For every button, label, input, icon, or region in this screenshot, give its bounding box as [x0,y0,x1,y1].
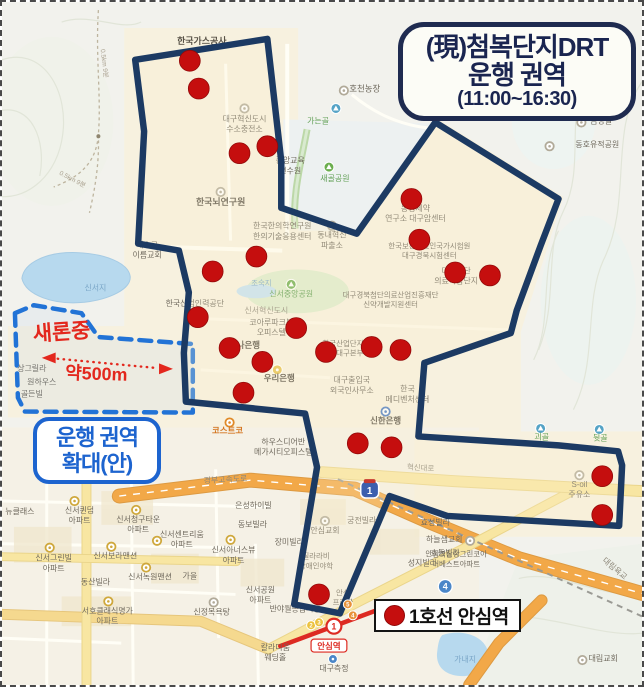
map-label: 괴골 [534,432,549,441]
map-label: 신서보라맨션 [93,551,137,561]
gray-icon-glyph [343,89,346,92]
map-label: 대림교회 [589,653,618,663]
expressway-shield-number: 1 [367,486,373,497]
map-label: 동보빌라 [238,519,268,529]
map-label: 뒷골 [593,433,608,442]
drt-stop-dot [188,78,209,99]
expansion-line-1: 운행 권역 [56,425,138,450]
map-label: 하늘샘교회 [426,534,463,544]
map-label: 신서녹원맨션 [128,572,172,582]
apt-icon-glyph [73,500,76,503]
expansion-line-2: 확대(안) [62,451,132,476]
title-line-2: 운행 권역 [468,61,566,89]
map-label: 장미빌라 [275,537,305,547]
apt-icon-glyph [229,538,232,541]
map-label: 대구측정 [319,663,348,673]
place-icon-glyph [332,658,335,661]
subway-line-1-number: 1 [331,622,336,632]
legend-label: 1호선 안심역 [409,602,509,629]
apt-icon-glyph [145,566,148,569]
drt-stop-dot [361,337,382,358]
gray-icon-glyph [469,539,472,542]
map-label: 신정목욕탕 [193,606,230,616]
apt-icon-glyph [135,509,138,512]
map-label: 안심역삼정그린코아더베스트아파트 [425,549,487,569]
drt-stop-dot [202,261,223,282]
drt-stop-dot [401,188,422,209]
map-label: 은성하이빌 [235,500,272,510]
drt-stop-dot [286,318,307,339]
apt-icon-glyph [107,600,110,603]
gray-icon-glyph [212,601,215,604]
drt-stop-dot [233,382,254,403]
expansion-proposal-box: 운행 권역 확대(안) [33,417,161,484]
gray-icon-glyph [581,659,584,662]
map-label: 동호유적공원 [575,139,619,149]
drt-stop-dot [592,504,613,525]
drt-stop-dot [480,265,501,286]
drt-stop-dot [252,351,273,372]
drt-stop-dot [316,342,337,363]
drt-stop-dot [592,466,613,487]
legend-stop-dot-icon [384,605,405,626]
apt-icon-glyph [156,539,159,542]
costco-icon-glyph [228,421,231,424]
current-service-area-title-box: (現)첨복단지DRT 운행 권역 (11:00~16:30) [398,22,636,121]
drt-stop-dot [381,437,402,458]
saeron-middle-school-label: 새론중 [32,319,91,346]
legend-box: 1호선 안심역 [374,599,521,632]
drt-stop-dot [187,307,208,328]
drt-stop-dot [219,338,240,359]
expressway-shield-top [364,479,376,483]
drt-stop-dot [246,246,267,267]
ansim-station-label: 안심역 [317,641,340,651]
map-label: 호천농장 [349,84,380,94]
gray-icon-glyph [548,145,551,148]
distance-label: 약500m [65,362,128,385]
title-line-1: (現)첨복단지DRT [426,33,608,61]
drt-stop-dot [229,143,250,164]
drt-stop-dot [347,433,368,454]
drt-stop-dot [257,136,278,157]
map-label: 새골공원 [320,174,349,183]
drt-stop-dot [445,262,466,283]
map-label: 동산빌라 [81,576,111,586]
map-label: 가는골 [307,116,329,125]
apt-icon-glyph [48,546,51,549]
route-shield-number: 4 [443,582,448,592]
apt-icon-glyph [110,545,113,548]
map-label: 가을 [183,572,198,581]
map-screenshot: 한국가스공사호천농장가는골금방골동호유적공원대구혁신도시수소충전소중앙교육연수원… [0,0,644,687]
map-label: 뉴클래스 [5,507,34,516]
map-label: 칼라디움웨딩홀 [261,643,290,662]
map-label: 코스트코 [212,425,243,435]
drt-stop-dot [179,50,200,71]
gray-icon-glyph [580,121,583,124]
title-operating-hours: (11:00~16:30) [457,89,577,111]
map-label: 가내지 [454,655,476,664]
map-label: 신서공원아파트 [246,585,275,604]
drt-stop-dot [309,584,330,605]
drt-stop-dot [390,340,411,361]
drt-stop-dot [409,229,430,250]
map-label: 신서지 [84,283,106,292]
